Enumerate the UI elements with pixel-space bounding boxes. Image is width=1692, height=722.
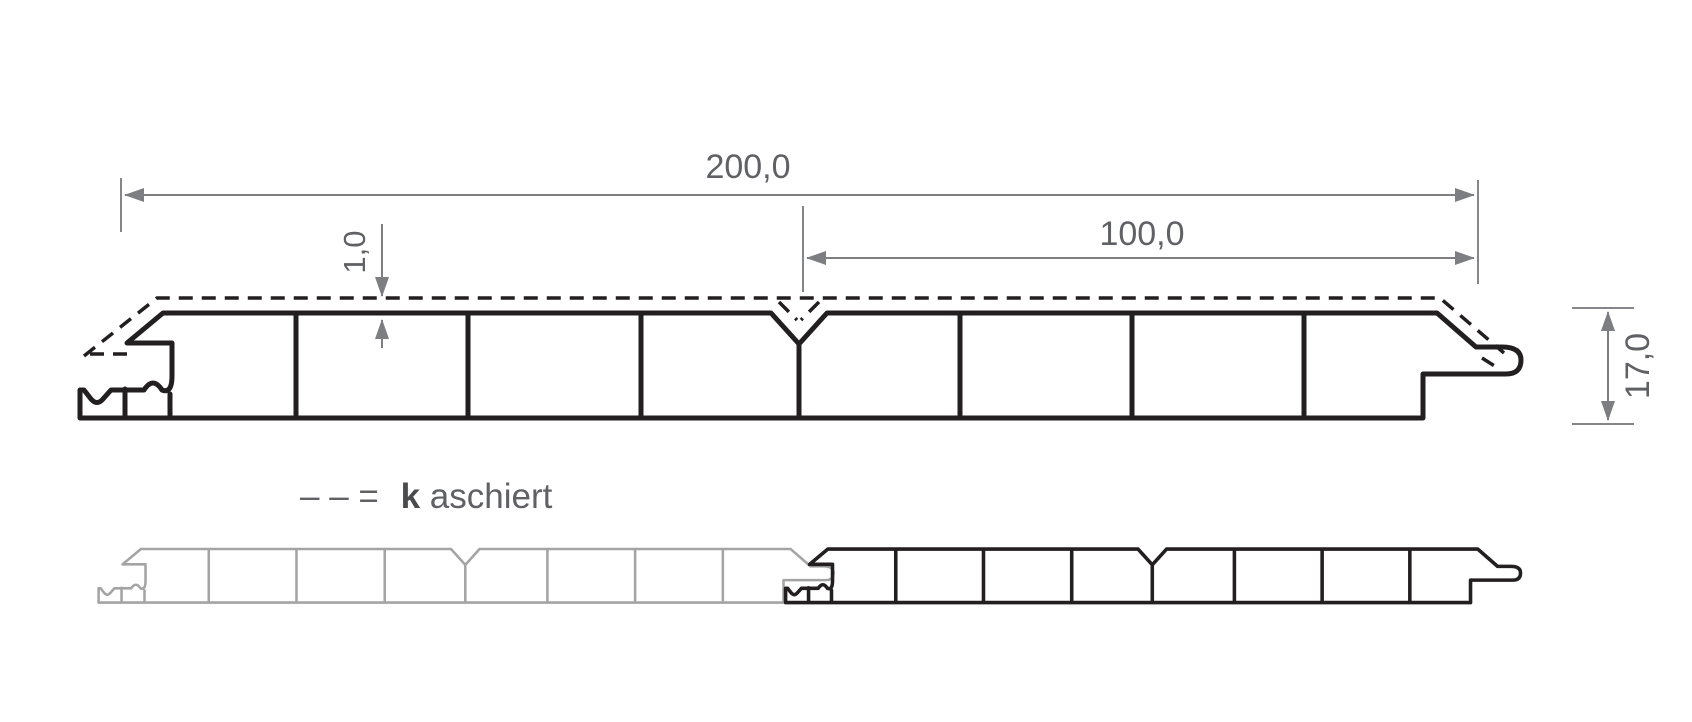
dimension-label-1: 1,0 <box>337 230 372 273</box>
panel-profile-drawing: 200,0 100,0 1,0 17,0 – – = k aschiert <box>0 0 1692 722</box>
dimension-laminate-thickness: 1,0 <box>337 224 382 348</box>
dimension-half-width: 100,0 <box>803 206 1474 292</box>
main-profile-section <box>80 298 1521 418</box>
joined-panel-dark <box>786 549 1521 603</box>
dimension-label-17: 17,0 <box>1619 333 1657 399</box>
dimension-label-200: 200,0 <box>705 148 790 186</box>
main-profile <box>80 313 1521 418</box>
dimension-label-100: 100,0 <box>1099 215 1184 253</box>
laminate-dash-right <box>1482 358 1501 370</box>
legend-label-rest: aschiert <box>430 477 553 516</box>
legend-dash-symbol: – – = <box>300 477 379 516</box>
kaschiert-legend: – – = k aschiert <box>300 477 553 516</box>
joined-panel-faded <box>99 549 834 603</box>
laminate-dashes-vgroove <box>779 302 819 320</box>
legend-label-bold-k: k <box>401 477 421 516</box>
dimension-panel-height: 17,0 <box>1572 308 1657 424</box>
dimension-total-width: 200,0 <box>121 148 1478 284</box>
technical-drawing-page: 200,0 100,0 1,0 17,0 – – = k aschiert <box>0 0 1692 722</box>
joined-panels-illustration <box>99 549 1521 603</box>
